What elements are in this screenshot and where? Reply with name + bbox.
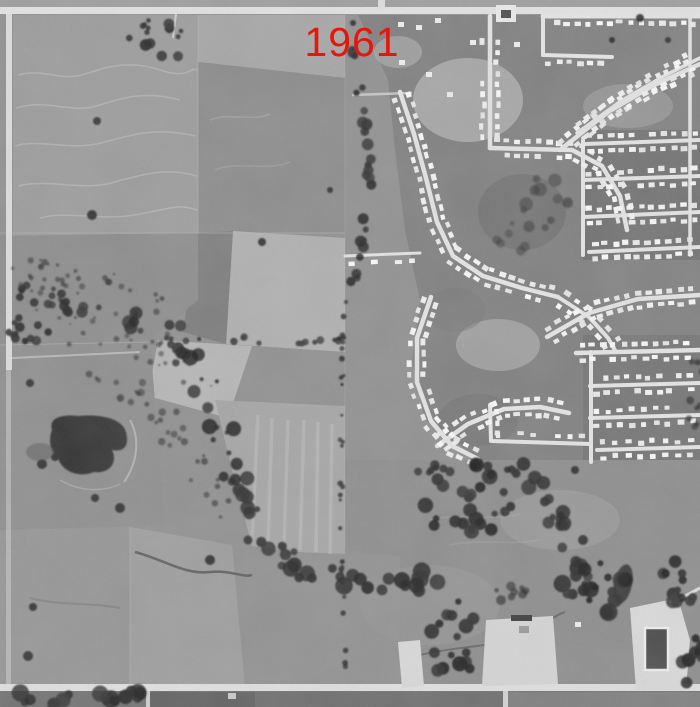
film-grain: [0, 0, 700, 707]
year-label: 1961: [304, 19, 399, 65]
aerial-photo-canvas: 1961: [0, 0, 700, 707]
aerial-photo-1961: 1961: [0, 0, 700, 707]
